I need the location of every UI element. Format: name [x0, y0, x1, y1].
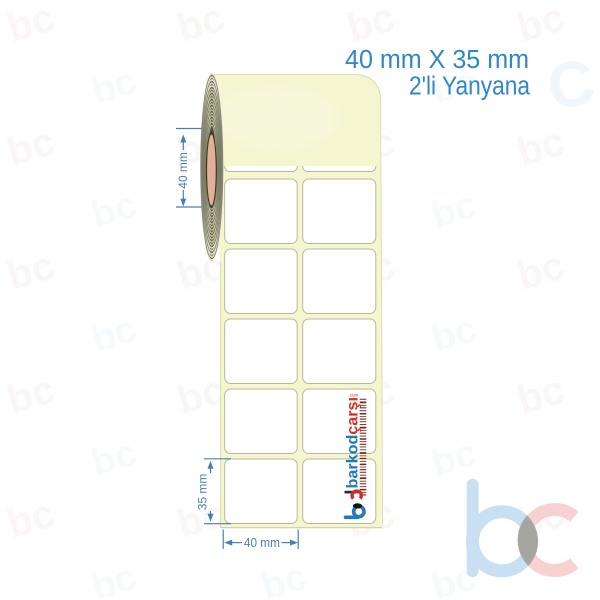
svg-text:35 mm: 35 mm	[195, 474, 209, 511]
svg-text:barkodçarşı: barkodçarşı	[345, 397, 362, 489]
svg-text:40 mm: 40 mm	[176, 152, 190, 189]
svg-text:.com: .com	[349, 393, 359, 398]
svg-text:2'li Yanyana: 2'li Yanyana	[409, 73, 531, 101]
svg-text:40 mm: 40 mm	[244, 535, 280, 550]
svg-text:40 mm X 35 mm: 40 mm X 35 mm	[345, 46, 529, 74]
